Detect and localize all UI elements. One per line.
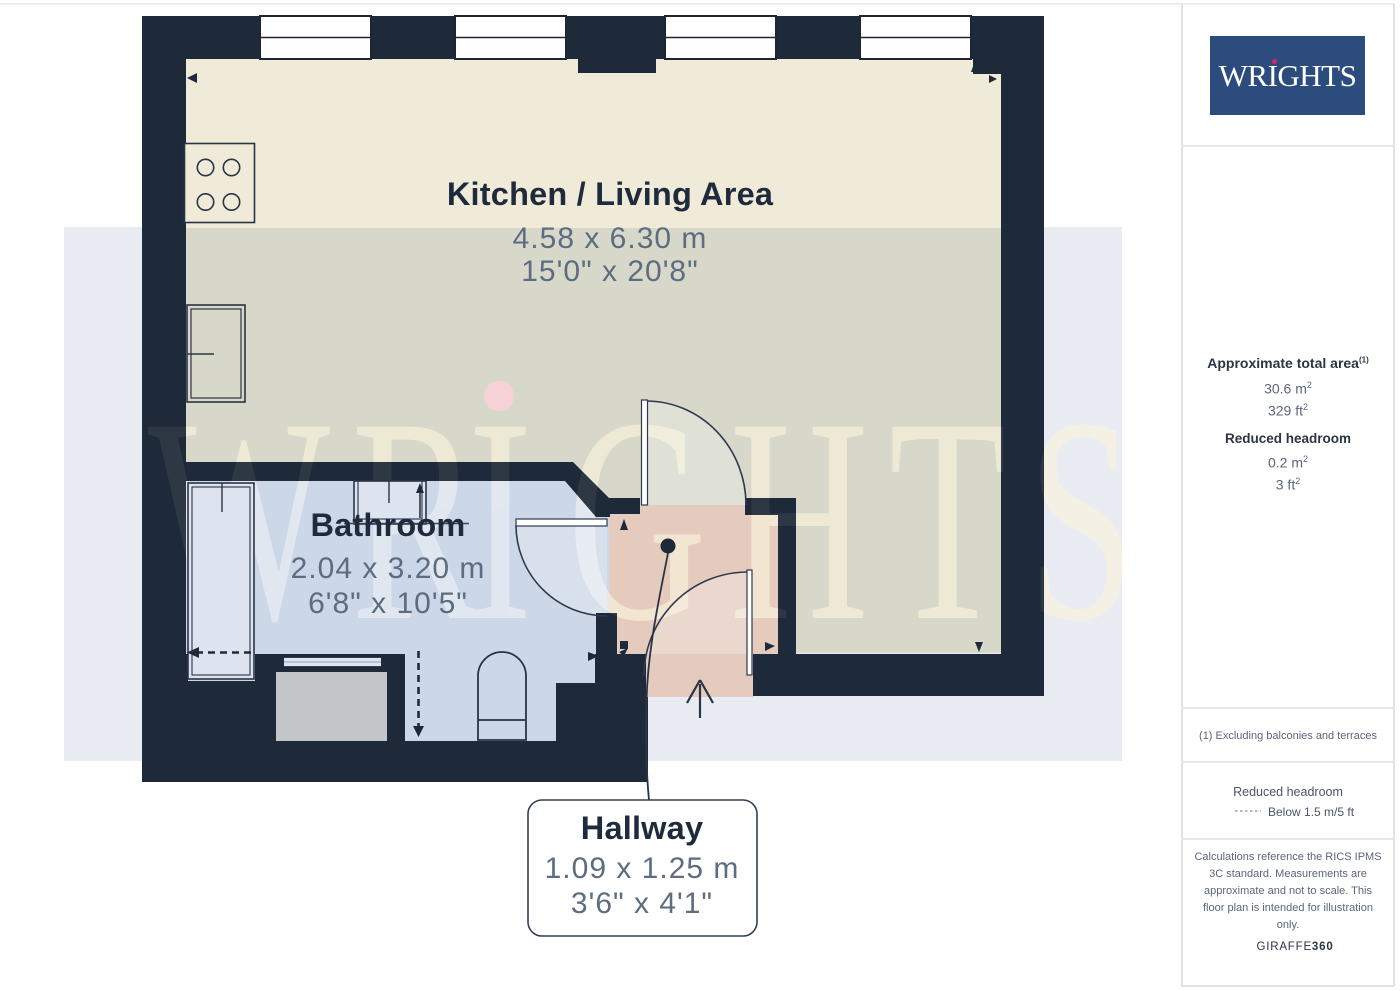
svg-text:Bathroom: Bathroom xyxy=(310,507,465,543)
svg-text:3'6" x 4'1": 3'6" x 4'1" xyxy=(571,887,713,920)
svg-text:6'8" x 10'5": 6'8" x 10'5" xyxy=(308,587,468,620)
svg-text:15'0" x 20'8": 15'0" x 20'8" xyxy=(521,255,699,288)
svg-text:2.04 x 3.20 m: 2.04 x 3.20 m xyxy=(291,552,486,585)
svg-text:S: S xyxy=(1027,358,1134,681)
svg-text:Kitchen / Living Area: Kitchen / Living Area xyxy=(447,176,774,212)
svg-text:T: T xyxy=(889,358,1007,681)
svg-text:Hallway: Hallway xyxy=(581,810,703,846)
svg-text:4.58 x 6.30 m: 4.58 x 6.30 m xyxy=(513,222,708,255)
svg-text:1.09 x 1.25 m: 1.09 x 1.25 m xyxy=(545,852,740,885)
